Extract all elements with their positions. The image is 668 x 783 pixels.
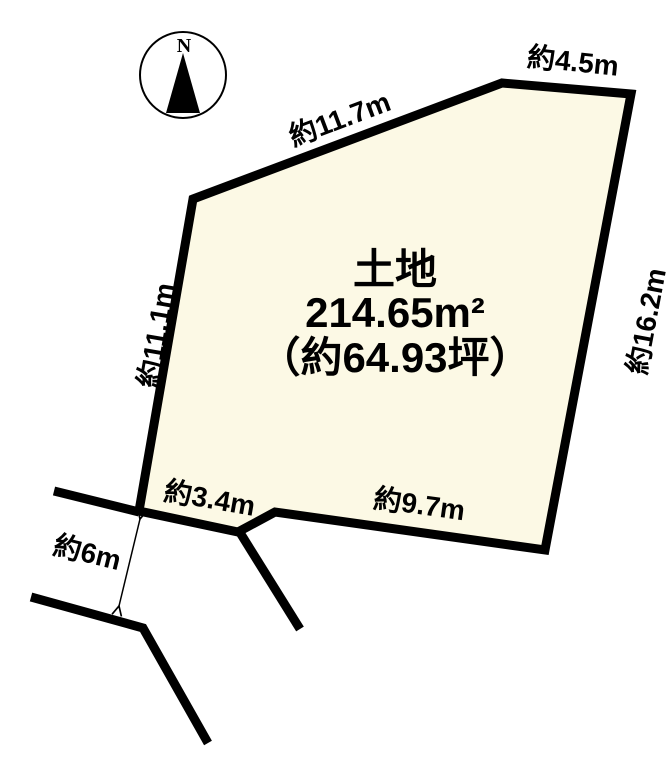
road-line-diagonal [239,531,300,629]
road-line-bottom [31,597,208,743]
compass-north-label: N [177,35,192,57]
parcel-area-tsubo: （約64.93坪） [258,334,531,381]
dimension-top-right-edge: 約4.5m [526,40,621,81]
land-plot-diagram: N 約11.7m 約4.5m 約11.1m 約16.2m 約3.4m 約9.7m… [0,0,668,783]
dimension-right-edge: 約16.2m [620,265,668,376]
parcel-area-m2: 214.65m² [305,289,485,336]
parcel-title: 土地 [353,246,437,293]
road-line-left [54,491,139,512]
compass: N [140,32,226,118]
road-width-arrow [119,519,140,606]
diagram-svg: N 約11.7m 約4.5m 約11.1m 約16.2m 約3.4m 約9.7m… [0,0,668,783]
dimension-road-width: 約6m [50,528,124,576]
